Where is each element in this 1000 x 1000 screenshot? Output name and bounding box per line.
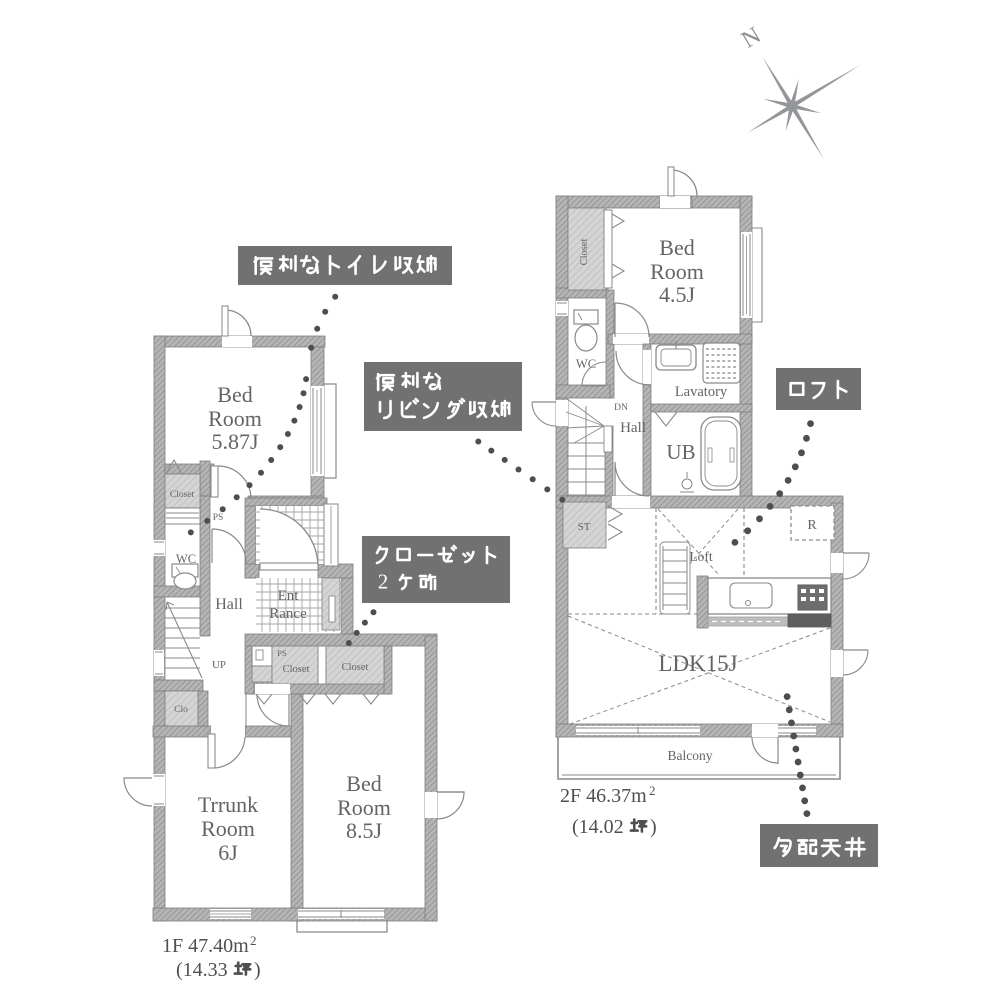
svg-text:Ent: Ent (278, 588, 300, 604)
svg-text:Rance: Rance (269, 606, 307, 622)
svg-text:Room: Room (337, 795, 391, 820)
svg-text:1F 47.40m: 1F 47.40m (162, 935, 249, 957)
svg-text:2: 2 (250, 933, 257, 948)
svg-text:LDK15J: LDK15J (658, 651, 737, 676)
svg-text:Closet: Closet (342, 662, 369, 673)
svg-text:(14.02: (14.02 (572, 816, 624, 838)
svg-text:Closet: Closet (170, 490, 195, 500)
svg-text:UP: UP (212, 659, 226, 671)
svg-text:WC: WC (576, 357, 596, 371)
svg-text:Closet: Closet (283, 664, 310, 675)
svg-text:2: 2 (378, 569, 389, 593)
svg-text:Bed: Bed (346, 771, 381, 796)
svg-text:6J: 6J (218, 840, 238, 865)
svg-text:Bed: Bed (217, 382, 252, 407)
svg-text:DN: DN (614, 403, 628, 413)
svg-text:8.5J: 8.5J (346, 818, 383, 843)
svg-text:5.87J: 5.87J (211, 429, 259, 454)
svg-text:Lavatory: Lavatory (675, 384, 728, 400)
svg-text:(14.33: (14.33 (176, 959, 228, 981)
svg-text:Room: Room (650, 259, 704, 284)
svg-text:): ) (650, 816, 657, 838)
svg-text:Room: Room (201, 816, 255, 841)
svg-text:Trrunk: Trrunk (198, 792, 258, 817)
svg-text:PS: PS (213, 513, 224, 523)
svg-text:Closet: Closet (579, 239, 590, 266)
svg-text:2F 46.37m: 2F 46.37m (560, 785, 647, 807)
svg-text:2: 2 (649, 783, 656, 798)
svg-text:Balcony: Balcony (668, 748, 713, 763)
svg-text:R: R (807, 518, 817, 533)
svg-text:Hall: Hall (620, 420, 646, 436)
svg-text:UB: UB (666, 440, 695, 464)
svg-text:Loft: Loft (689, 549, 712, 564)
svg-text:): ) (254, 959, 261, 981)
svg-text:Room: Room (208, 406, 262, 431)
svg-text:ST: ST (578, 521, 591, 533)
svg-text:PS: PS (277, 648, 287, 658)
svg-text:Clo: Clo (174, 705, 188, 715)
svg-text:4.5J: 4.5J (659, 282, 696, 307)
svg-text:Bed: Bed (659, 235, 694, 260)
svg-text:Hall: Hall (215, 596, 243, 613)
